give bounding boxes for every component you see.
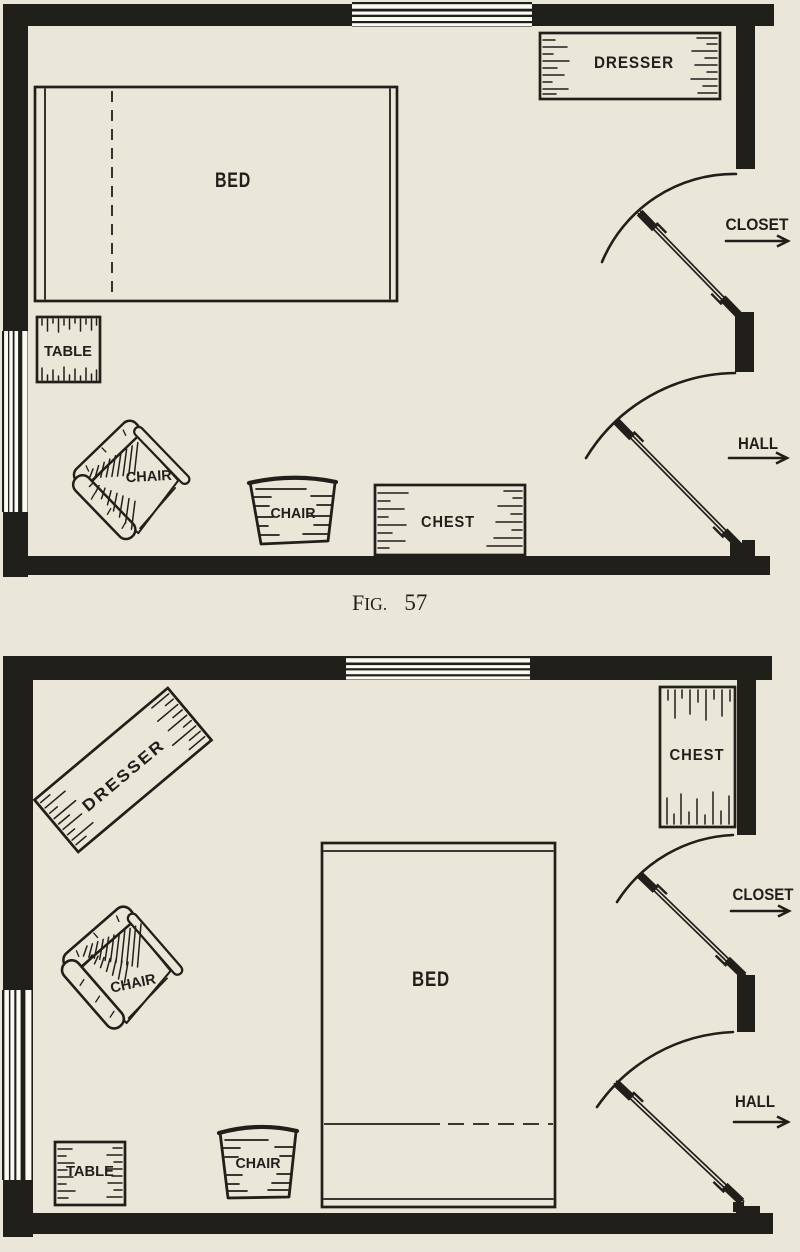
svg-text:HALL: HALL xyxy=(738,434,778,453)
svg-text:CHAIR: CHAIR xyxy=(271,506,317,522)
svg-text:BED: BED xyxy=(412,968,450,991)
svg-text:DRESSER: DRESSER xyxy=(594,53,674,72)
svg-text:HALL: HALL xyxy=(735,1092,775,1111)
svg-text:CHEST: CHEST xyxy=(421,514,475,531)
svg-text:TABLE: TABLE xyxy=(44,343,92,360)
svg-text:TABLE: TABLE xyxy=(66,1163,114,1180)
svg-text:CLOSET: CLOSET xyxy=(726,215,790,234)
svg-text:FIG. 57: FIG. 57 xyxy=(352,590,427,615)
svg-text:CHEST: CHEST xyxy=(670,747,725,764)
svg-text:CHAIR: CHAIR xyxy=(236,1156,282,1172)
svg-text:BED: BED xyxy=(215,169,251,192)
svg-text:CHAIR: CHAIR xyxy=(125,468,172,486)
svg-text:CLOSET: CLOSET xyxy=(733,885,795,904)
